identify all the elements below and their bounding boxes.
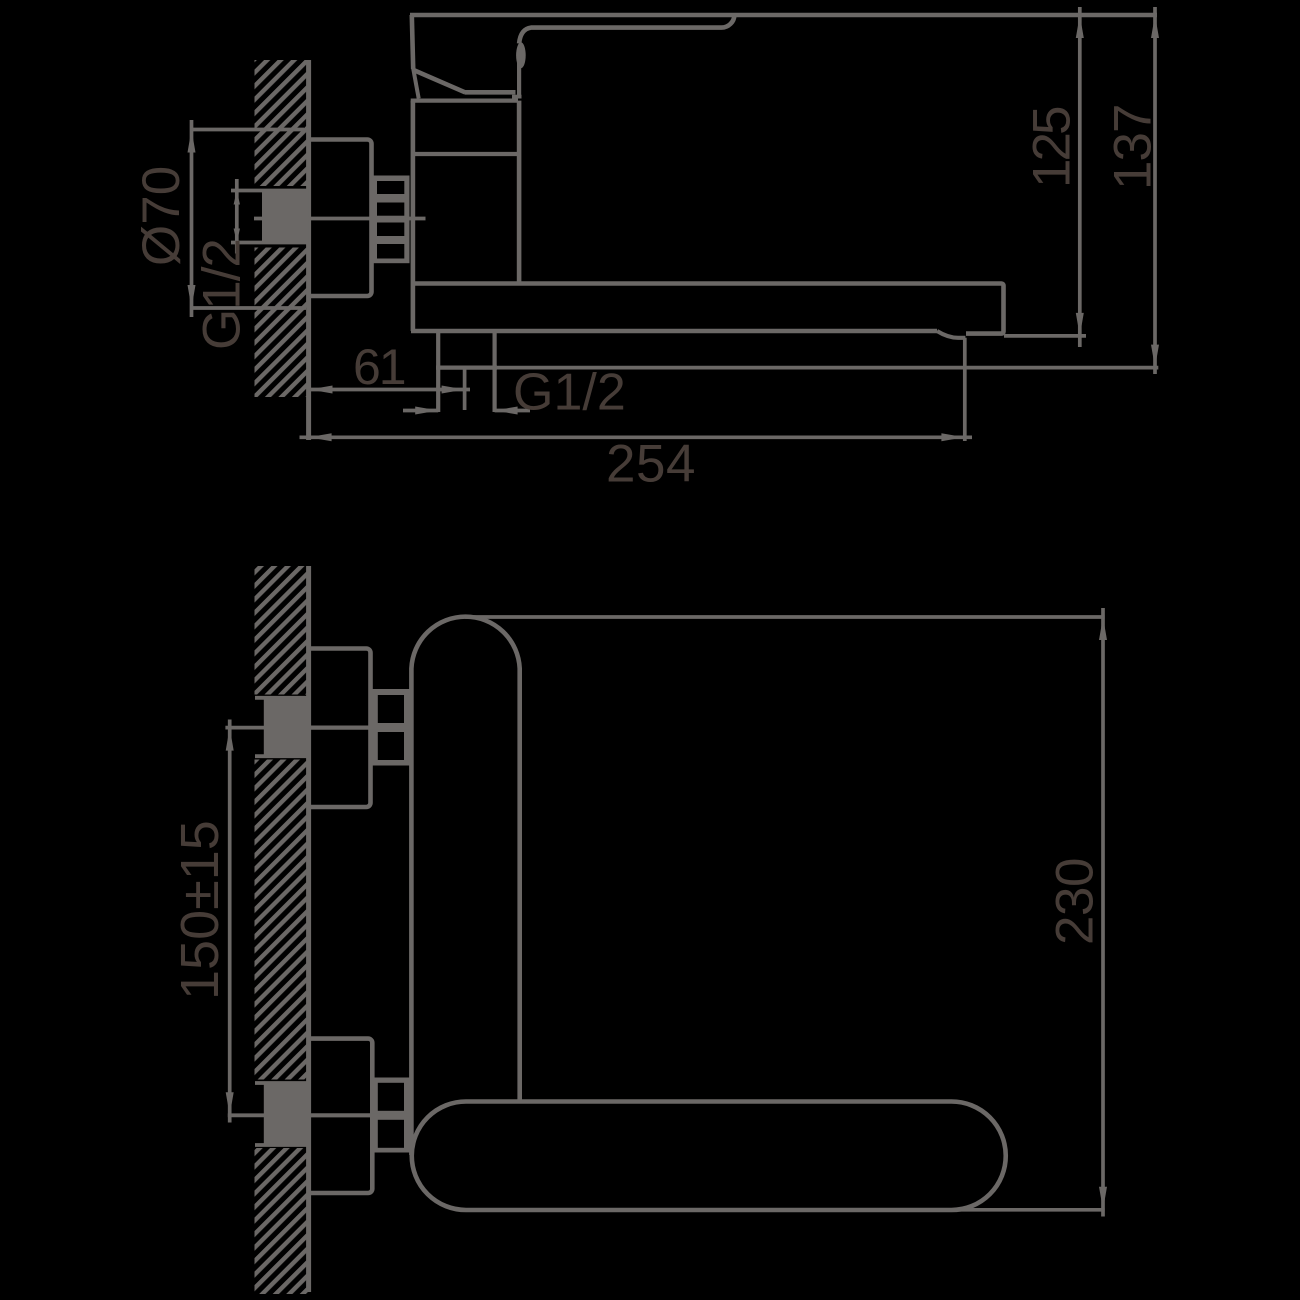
svg-text:254: 254: [606, 435, 696, 494]
svg-text:150±15: 150±15: [170, 820, 230, 1000]
svg-text:61: 61: [353, 339, 405, 395]
svg-text:125: 125: [1023, 107, 1082, 188]
svg-text:Ø70: Ø70: [132, 166, 191, 266]
svg-text:137: 137: [1104, 105, 1163, 190]
svg-text:G1/2: G1/2: [193, 239, 252, 350]
svg-text:230: 230: [1046, 858, 1105, 945]
svg-text:G1/2: G1/2: [513, 364, 626, 422]
